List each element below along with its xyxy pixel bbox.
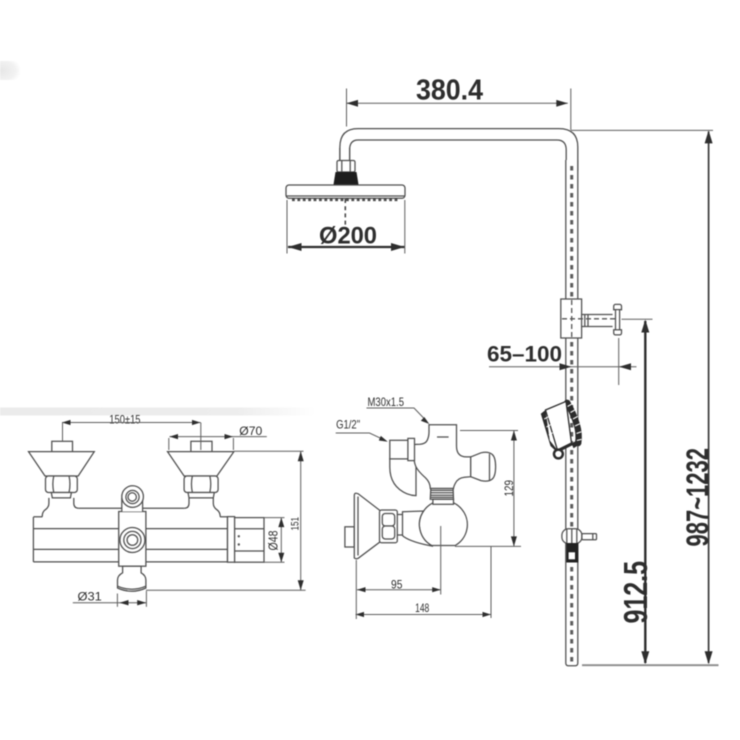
svg-text:Ø70: Ø70 bbox=[239, 424, 262, 438]
svg-text:148: 148 bbox=[415, 601, 429, 615]
svg-text:65–100: 65–100 bbox=[487, 342, 562, 367]
svg-text:150±15: 150±15 bbox=[109, 413, 140, 427]
svg-text:G1/2": G1/2" bbox=[336, 418, 360, 432]
svg-text:Ø48: Ø48 bbox=[266, 531, 281, 551]
svg-text:Ø200: Ø200 bbox=[319, 223, 377, 250]
svg-text:Ø31: Ø31 bbox=[78, 590, 103, 604]
svg-text:129: 129 bbox=[502, 480, 516, 497]
svg-text:151: 151 bbox=[289, 517, 301, 531]
svg-text:380.4: 380.4 bbox=[416, 75, 483, 107]
svg-text:912.5: 912.5 bbox=[617, 561, 654, 624]
svg-text:M30x1.5: M30x1.5 bbox=[368, 395, 405, 409]
svg-text:987~1232: 987~1232 bbox=[679, 448, 715, 547]
